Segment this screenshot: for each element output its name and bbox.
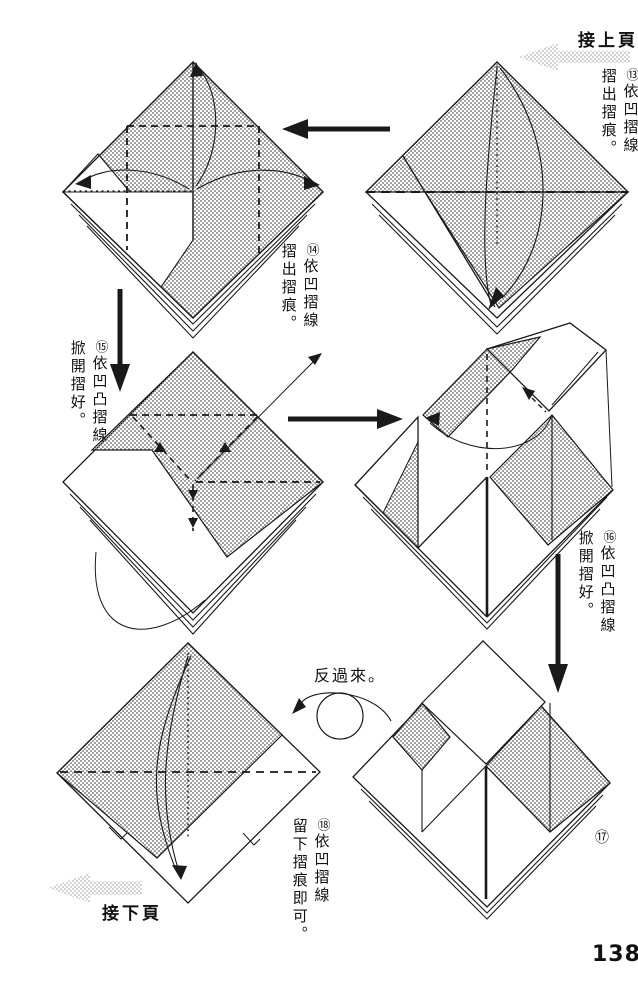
turn-over-label: 反過來。 — [314, 662, 386, 686]
step13-text-1: 依凹摺線 — [622, 83, 638, 155]
step13-note: ⑬依凹摺線 摺出摺痕。 — [597, 68, 638, 243]
turn-over-symbol — [292, 693, 391, 739]
page-number: 138 — [592, 942, 638, 967]
prev-page-label: 接上頁 — [578, 26, 638, 51]
step18-text-1: 依凹摺線 — [313, 833, 331, 905]
step14-note: ⑭依凹摺線 摺出摺痕。 — [277, 243, 321, 418]
step18-text-2: 留下摺痕即可。 — [288, 818, 310, 998]
edge-line — [355, 485, 487, 617]
flow-arrow-down-left-head-icon — [110, 364, 130, 392]
step15-text-1: 依凹凸摺線 — [91, 355, 109, 445]
step15-note: ⑮依凹凸摺線 掀開摺好。 — [66, 340, 110, 530]
diagram-step17 — [353, 641, 610, 919]
step18-note: ⑱依凹摺線 留下摺痕即可。 — [288, 818, 332, 998]
shaded-face — [423, 337, 540, 437]
step13-number: ⑬ — [624, 68, 638, 83]
step14-text-2: 摺出摺痕。 — [277, 243, 299, 418]
turn-over-circle-icon — [317, 693, 363, 739]
turn-over-arrow — [299, 693, 391, 721]
step15-number: ⑮ — [93, 340, 108, 355]
step16-note: ⑯依凹凸摺線 掀開摺好。 — [574, 530, 618, 720]
flow-arrow-down-right-head-icon — [548, 664, 568, 693]
step18-number: ⑱ — [315, 818, 330, 833]
step14-text-1: 依凹摺線 — [302, 258, 320, 330]
step17-number: ⑰ — [595, 827, 609, 847]
edge-line — [418, 477, 487, 548]
diagram-step18 — [57, 643, 320, 903]
step15-text-2: 掀開摺好。 — [66, 340, 88, 530]
step14-number: ⑭ — [304, 243, 319, 258]
diagram-step13 — [366, 62, 628, 334]
next-page-label: 接下頁 — [102, 899, 162, 924]
step16-text-1: 依凹凸摺線 — [599, 545, 617, 635]
edge-line — [606, 350, 612, 487]
step13-text-2: 摺出摺痕。 — [597, 68, 619, 243]
step16-text-2: 掀開摺好。 — [574, 530, 596, 720]
origami-book-page: 接上頁 ⑬依凹摺線 摺出摺痕。 ⑭依凹摺線 摺出摺痕。 ⑮依凹凸摺線 掀開摺好。… — [0, 0, 638, 1000]
flow-arrow-right-head-icon — [377, 409, 403, 429]
flow-arrow-left-head-icon — [282, 119, 308, 139]
step16-number: ⑯ — [601, 530, 616, 545]
